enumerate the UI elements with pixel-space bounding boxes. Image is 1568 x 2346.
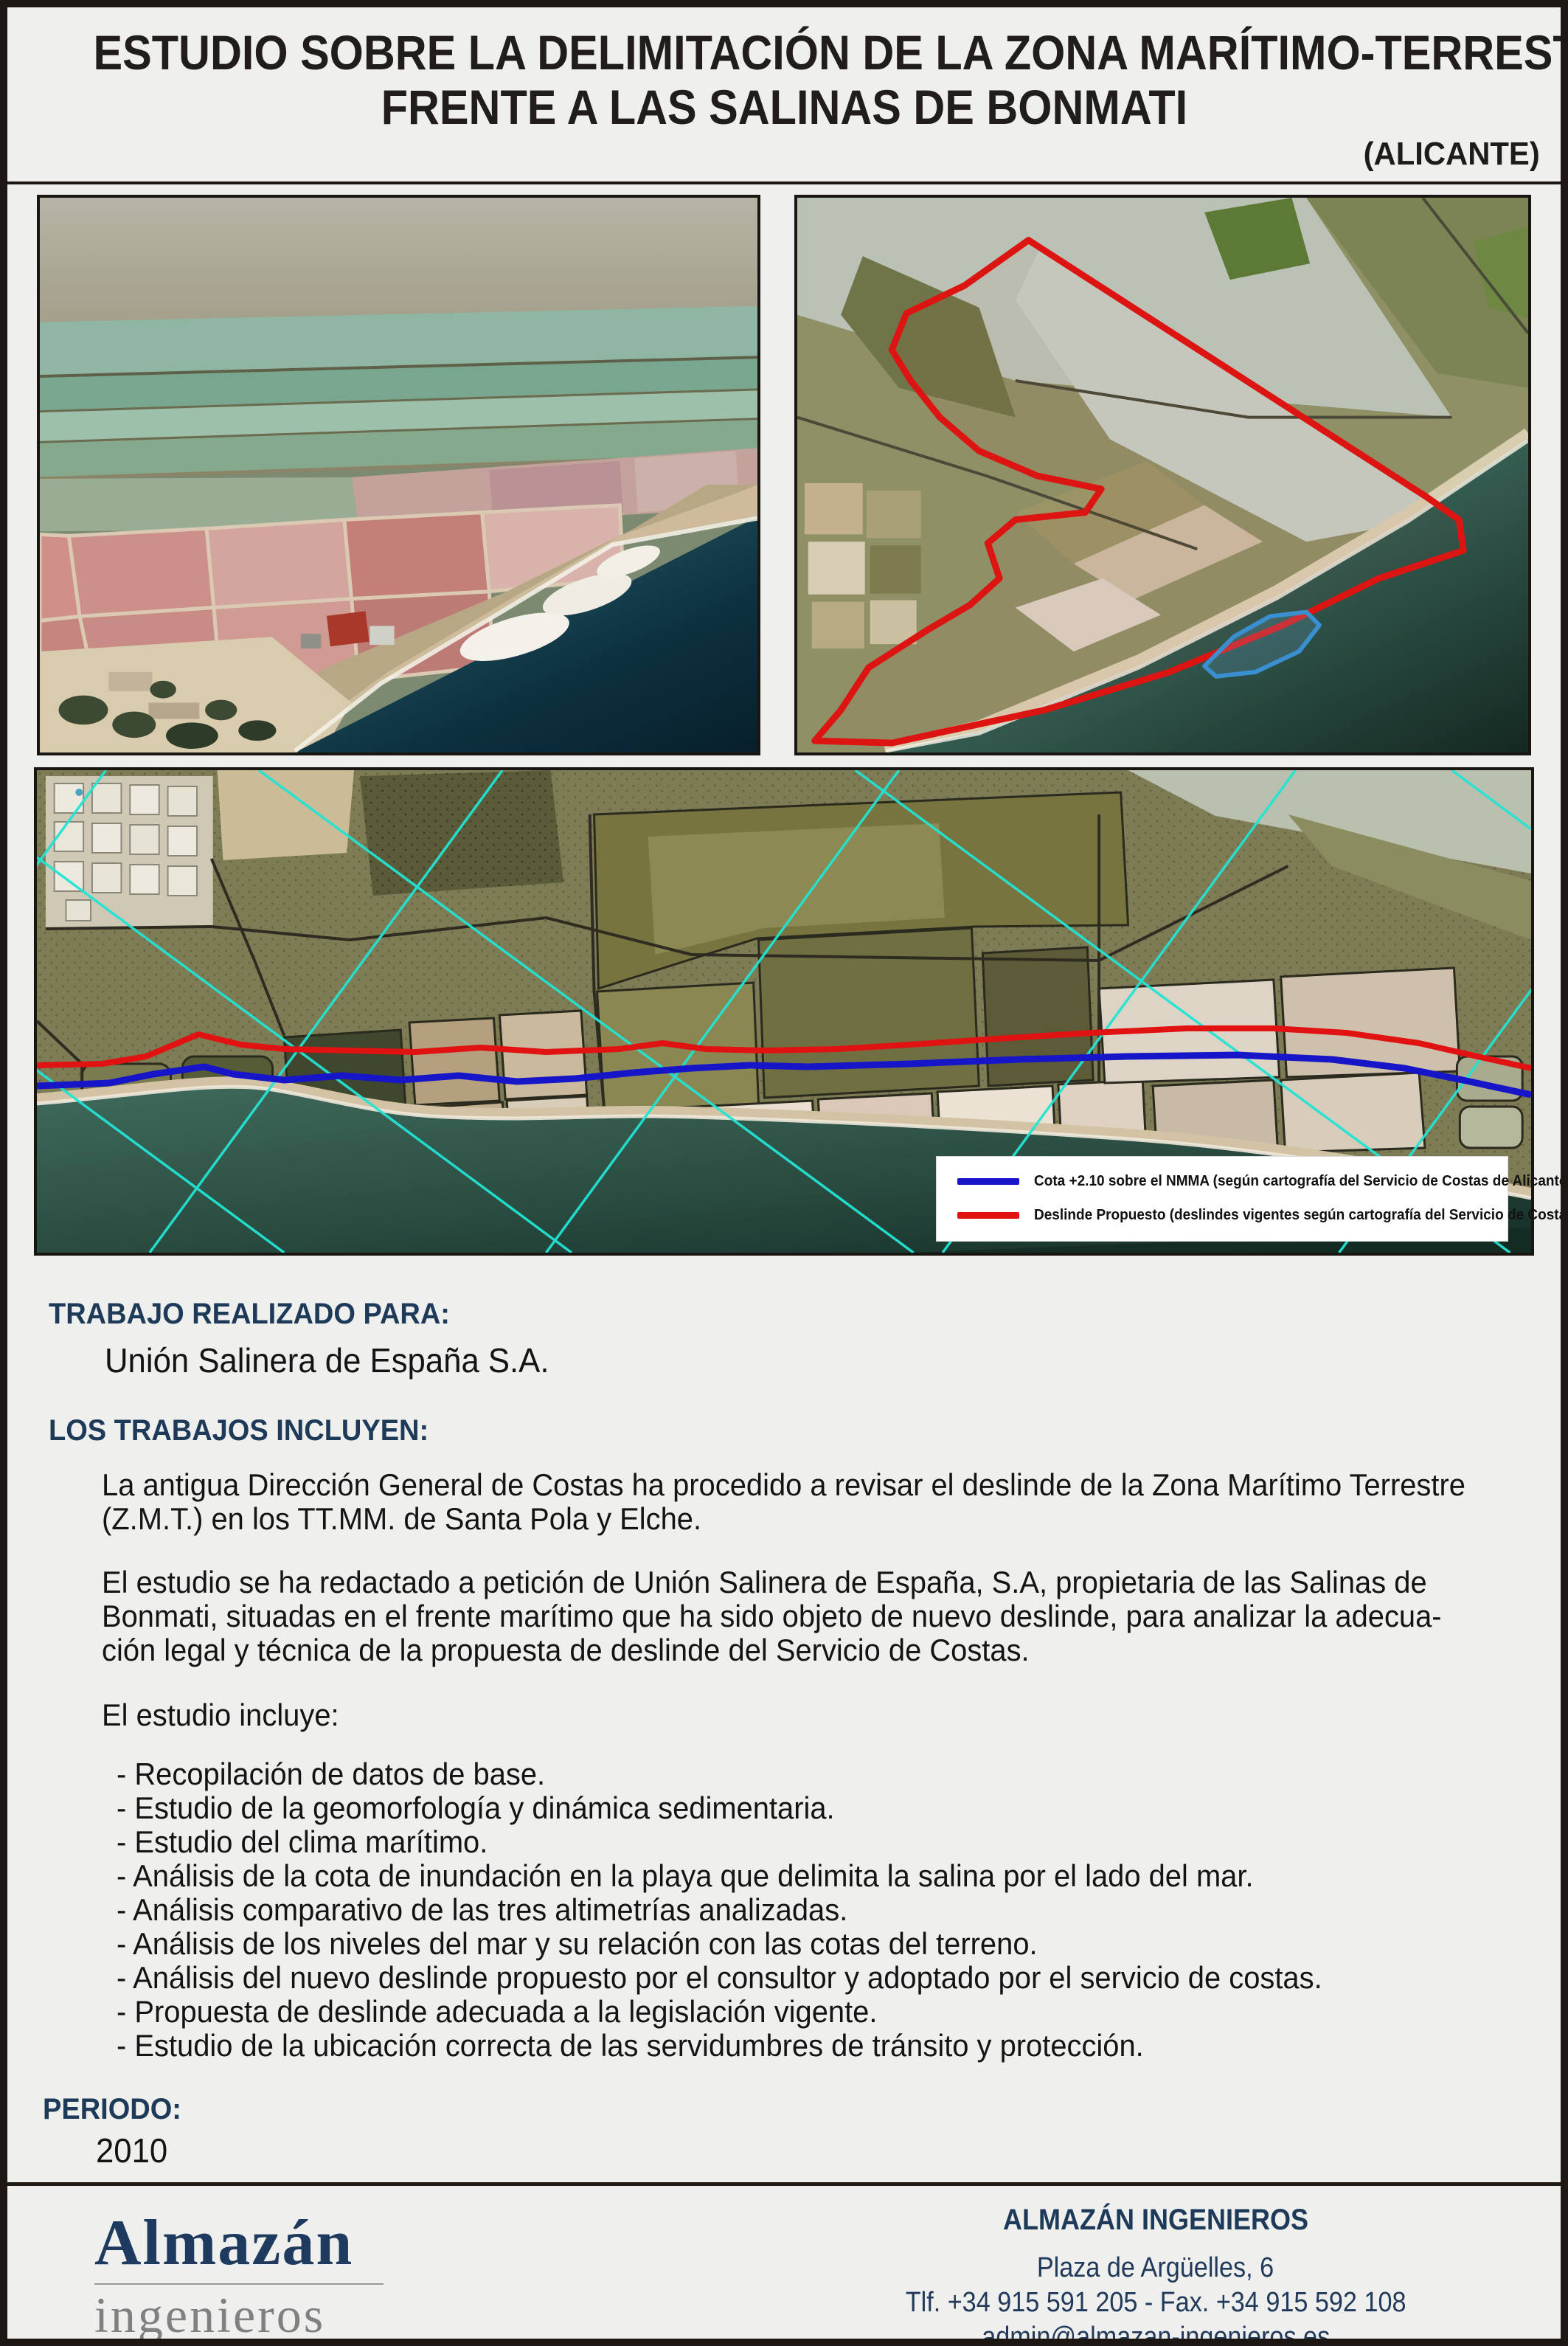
- text-line: - Análisis del nuevo deslinde propuesto …: [117, 1961, 1561, 1995]
- text-line-content: - Análisis de la cota de inundación en l…: [117, 1859, 1254, 1893]
- logo-rule: [94, 2283, 384, 2285]
- text-line: ción legal y técnica de la propuesta de …: [102, 1633, 1561, 1667]
- text-line-content: - Recopilación de datos de base.: [117, 1757, 545, 1791]
- title-divider: [7, 181, 1561, 184]
- study-items-list: - Recopilación de datos de base.- Estudi…: [117, 1757, 1561, 2063]
- project-sheet-page: ESTUDIO SOBRE LA DELIMITACIÓN DE LA ZONA…: [0, 0, 1568, 2346]
- client-name: Unión Salinera de España S.A.: [105, 1341, 1561, 1380]
- legend-item-cota: Cota +2.10 sobre el NMMA (según cartogra…: [957, 1173, 1568, 1190]
- text-line: - Propuesta de deslinde adecuada a la le…: [117, 1995, 1561, 2029]
- text-line-content: - Análisis de los niveles del mar y su r…: [117, 1927, 1038, 1961]
- text-line-content: El estudio se ha redactado a petición de…: [102, 1565, 1427, 1599]
- text-line-content: (Z.M.T.) en los TT.MM. de Santa Pola y E…: [102, 1502, 701, 1536]
- page-title-line-2: FRENTE A LAS SALINAS DE BONMATI: [7, 80, 1561, 134]
- map-legend: Cota +2.10 sobre el NMMA (según cartogra…: [937, 1157, 1508, 1241]
- includes-heading: El estudio incluye:: [102, 1698, 1561, 1732]
- text-line: - Estudio del clima marítimo.: [117, 1825, 1561, 1859]
- text-line: - Estudio de la ubicación correcta de la…: [117, 2029, 1561, 2063]
- text-line: (Z.M.T.) en los TT.MM. de Santa Pola y E…: [102, 1502, 1561, 1536]
- logo-wordmark: Almazán: [94, 2211, 384, 2276]
- company-logo: Almazán ingenieros: [94, 2211, 384, 2341]
- text-line-content: La antigua Dirección General de Costas h…: [102, 1468, 1465, 1502]
- text-line: El estudio se ha redactado a petición de…: [102, 1565, 1561, 1599]
- legend-label: Deslinde Propuesto (deslindes vigentes s…: [1034, 1207, 1568, 1224]
- text-line: Bonmati, situadas en el frente marítimo …: [102, 1599, 1561, 1633]
- paragraph-purpose: El estudio se ha redactado a petición de…: [102, 1565, 1561, 1667]
- company-email: admin@almazan-ingenieros.es: [783, 2320, 1528, 2346]
- red-line-sample: [957, 1212, 1019, 1219]
- aerial-photo-salinas: [37, 195, 760, 755]
- legend-item-deslinde: Deslinde Propuesto (deslindes vigentes s…: [957, 1207, 1568, 1224]
- text-line-content: - Estudio de la geomorfología y dinámica…: [117, 1791, 835, 1825]
- text-line: La antigua Dirección General de Costas h…: [102, 1468, 1561, 1502]
- contact-block: ALMAZÁN INGENIEROS Plaza de Argüelles, 6…: [783, 2202, 1528, 2346]
- urban-blocks: [46, 776, 213, 927]
- client-heading: TRABAJO REALIZADO PARA:: [49, 1297, 1561, 1331]
- text-line: - Análisis de los niveles del mar y su r…: [117, 1927, 1561, 1961]
- text-line-content: - Análisis comparativo de las tres altim…: [117, 1893, 847, 1927]
- text-line: - Estudio de la geomorfología y dinámica…: [117, 1791, 1561, 1825]
- text-line: - Recopilación de datos de base.: [117, 1757, 1561, 1791]
- text-line-content: - Propuesta de deslinde adecuada a la le…: [117, 1995, 877, 2029]
- period-value: 2010: [96, 2132, 1561, 2169]
- title-block: ESTUDIO SOBRE LA DELIMITACIÓN DE LA ZONA…: [7, 7, 1561, 134]
- ortho-photo-illustration: [797, 198, 1528, 752]
- text-line-content: Bonmati, situadas en el frente marítimo …: [102, 1599, 1442, 1633]
- province-label: (ALICANTE): [7, 136, 1561, 174]
- footer: Almazán ingenieros ALMAZÁN INGENIEROS Pl…: [7, 2186, 1561, 2346]
- text-line: - Análisis comparativo de las tres altim…: [117, 1893, 1561, 1927]
- coastal-strip-map: Cota +2.10 sobre el NMMA (según cartogra…: [34, 767, 1534, 1256]
- text-line: - Análisis de la cota de inundación en l…: [117, 1859, 1561, 1893]
- ortho-photo-boundary: [794, 195, 1531, 755]
- paragraph-revision: La antigua Dirección General de Costas h…: [102, 1468, 1561, 1536]
- period-heading: PERIODO:: [43, 2092, 1561, 2126]
- logo-tagline: ingenieros: [94, 2289, 384, 2341]
- text-line-content: - Estudio de la ubicación correcta de la…: [117, 2029, 1144, 2063]
- legend-label: Cota +2.10 sobre el NMMA (según cartogra…: [1034, 1173, 1568, 1190]
- text-line-content: ción legal y técnica de la propuesta de …: [102, 1633, 1030, 1667]
- blue-line-sample: [957, 1178, 1019, 1185]
- lagoon-bands: [40, 306, 757, 479]
- company-phone-fax: Tlf. +34 915 591 205 - Fax. +34 915 592 …: [783, 2286, 1528, 2320]
- aerial-photo-illustration: [40, 198, 757, 752]
- company-name: ALMAZÁN INGENIEROS: [783, 2202, 1528, 2238]
- page-title-line-1: ESTUDIO SOBRE LA DELIMITACIÓN DE LA ZONA…: [7, 25, 1561, 80]
- works-heading: LOS TRABAJOS INCLUYEN:: [49, 1414, 1561, 1447]
- company-address: Plaza de Argüelles, 6: [783, 2251, 1528, 2286]
- photo-row: [37, 195, 1531, 755]
- text-line-content: - Análisis del nuevo deslinde propuesto …: [117, 1961, 1322, 1995]
- text-line-content: - Estudio del clima marítimo.: [117, 1825, 488, 1859]
